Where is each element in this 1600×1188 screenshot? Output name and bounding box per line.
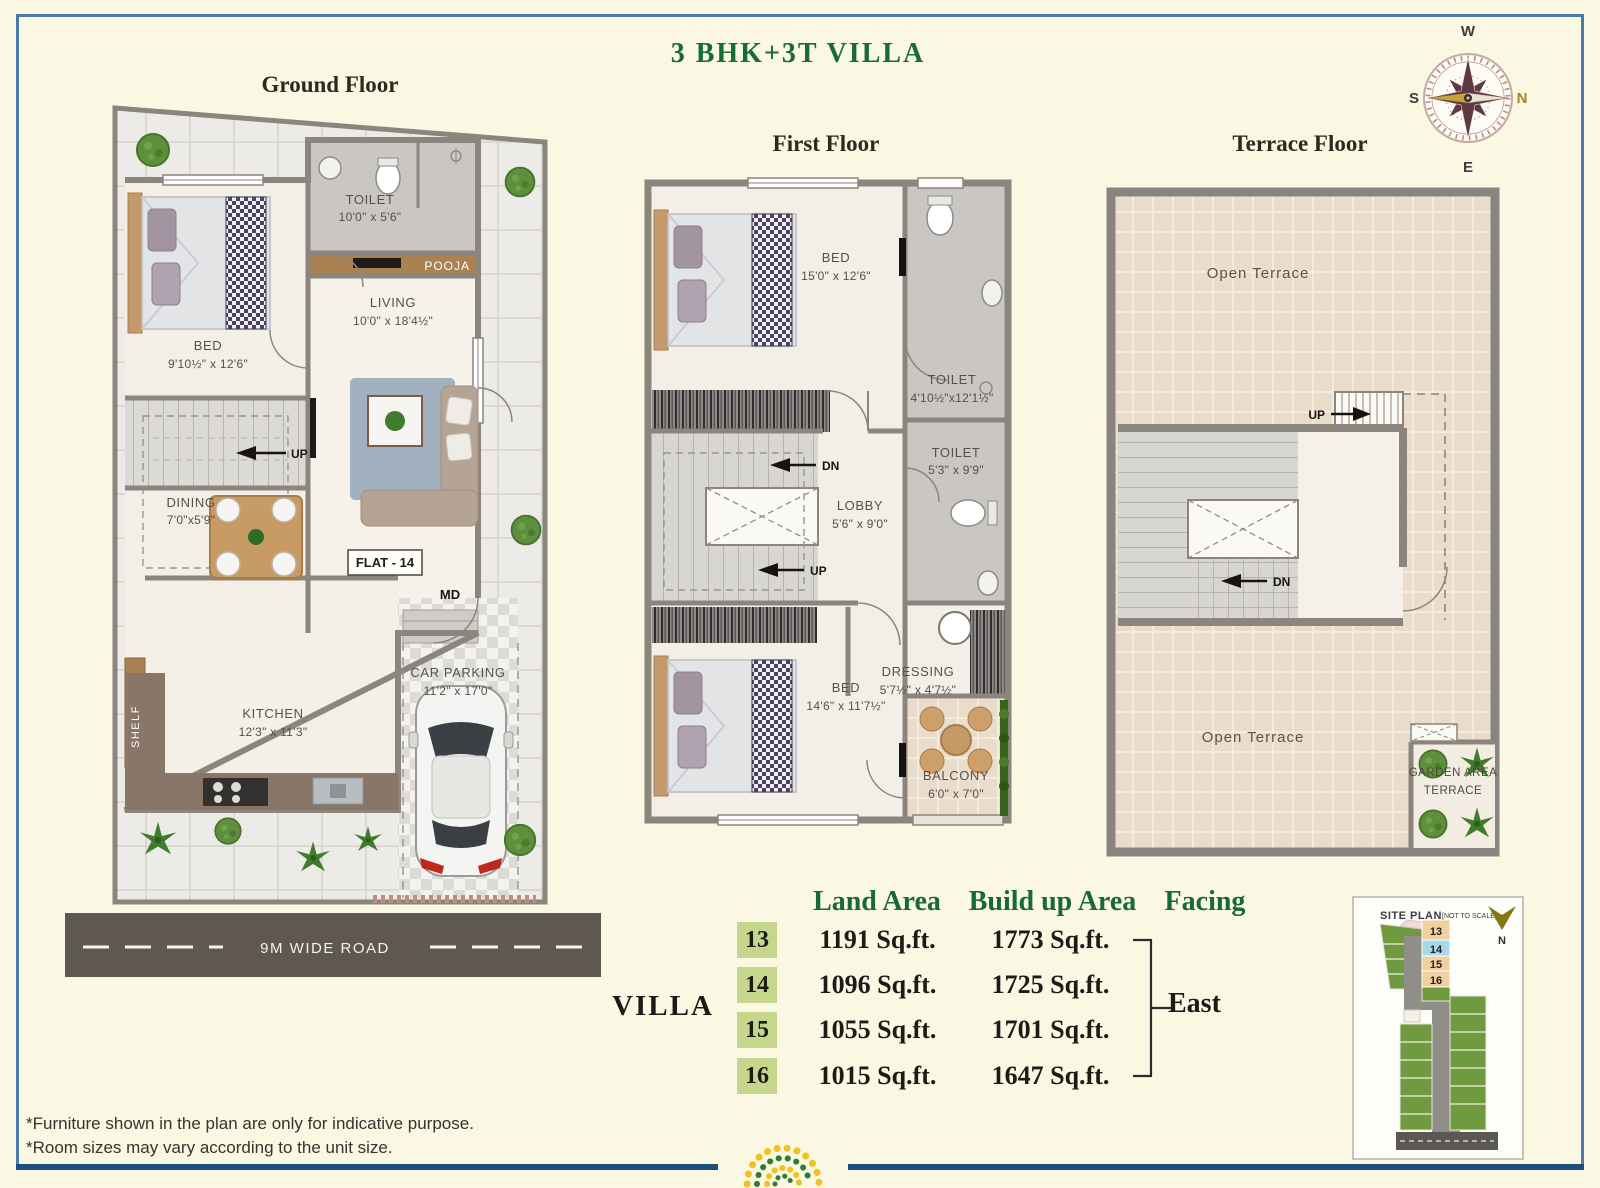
compass-north-label: N [1517,90,1528,107]
ff-bed2-label: BED [832,680,861,695]
tf-dn-label: DN [1273,575,1290,589]
site-plot-14: 14 [1430,944,1443,956]
ff-up-label: UP [810,564,827,578]
ff-bed2-dims: 14'6" x 11'7½" [806,699,885,713]
ff-lobby-dims: 5'6" x 9'0" [832,517,888,531]
gf-bed-dims: 9'10½" x 12'6" [168,357,248,371]
gf-bed-label: BED [194,338,223,353]
ff-toilet1-label: TOILET [928,372,977,387]
villa-number-16: 16 [737,1058,777,1094]
table-col-facing: Facing [1140,886,1270,918]
gf-living-label: LIVING [370,295,416,310]
ff-balcony-label: BALCONY [923,768,989,783]
gf-toilet-dims: 10'0" x 5'6" [339,210,402,224]
gf-kitchen-label: KITCHEN [242,706,303,721]
ff-bed1-label: BED [822,250,851,265]
land-area-14: 1096 Sq.ft. [795,970,960,1000]
land-area-15: 1055 Sq.ft. [795,1015,960,1045]
terrace-floor-heading: Terrace Floor [1150,131,1450,157]
ff-dressing-label: DRESSING [882,664,955,679]
gf-dining-furniture [210,496,302,578]
land-area-13: 1191 Sq.ft. [795,925,960,955]
note-room-sizes: *Room sizes may vary according to the un… [26,1136,474,1160]
bottom-rule-left [16,1164,718,1170]
gf-parking-label: CAR PARKING [410,665,505,680]
note-furniture: *Furniture shown in the plan are only fo… [26,1112,474,1136]
bottom-rule-right [848,1164,1584,1170]
table-col-build-area: Build up Area [955,886,1150,918]
site-plan-plots: 13 14 15 16 [1422,920,1450,987]
ff-toilet1-dims: 4'10½"x12'1½" [910,391,993,405]
gf-toilet-label: TOILET [346,192,395,207]
gf-pooja-label: POOJA [424,259,470,273]
site-plan: SITE PLAN [NOT TO SCALE] N [1352,896,1524,1160]
villa-number-15: 15 [737,1012,777,1048]
gf-md-label: MD [440,587,460,602]
gf-shelf-label: SHELF [130,705,142,748]
tf-up-label: UP [1308,408,1325,422]
site-plan-scale-note: [NOT TO SCALE] [1442,913,1497,920]
gf-dining-dims: 7'0"x5'9" [167,513,216,527]
gf-parking-dims: 11'2" x 17'0" [424,684,493,698]
build-area-16: 1647 Sq.ft. [963,1061,1138,1091]
gf-flat-label: FLAT - 14 [356,555,415,570]
villa-number-14: 14 [737,967,777,1003]
gf-road: 9M WIDE ROAD [65,913,601,977]
build-area-14: 1725 Sq.ft. [963,970,1138,1000]
land-area-16: 1015 Sq.ft. [795,1061,960,1091]
tf-garden-label-1: GARDEN AREA [1409,767,1498,779]
ff-dressing-dims: 5'7½" x 4'7½" [880,683,956,697]
ff-balcony-dims: 6'0" x 7'0" [928,787,984,801]
site-plan-north-label: N [1498,935,1506,947]
compass-west-label: W [1461,23,1476,40]
tf-garden-label-2: TERRACE [1424,785,1482,797]
gf-flat-badge: FLAT - 14 [348,550,422,575]
ff-dn-label: DN [822,459,839,473]
ff-lobby-label: LOBBY [837,498,883,513]
first-floor-plan: DN UP BED 15'0" x 12'6" TOILET 4'10½"x12… [618,158,1038,853]
gf-dining-label: DINING [166,495,215,510]
footer-notes: *Furniture shown in the plan are only fo… [26,1112,474,1160]
ff-toilet2-label: TOILET [932,445,981,460]
facing-value: East [1168,988,1221,1020]
villa-number-13: 13 [737,922,777,958]
table-row-header: VILLA [608,990,718,1023]
gf-living-dims: 10'0" x 18'4½" [353,314,433,328]
site-plot-15: 15 [1430,959,1442,971]
first-floor-heading: First Floor [676,131,976,157]
page-title: 3 BHK+3T VILLA [598,38,998,70]
gf-up-label: UP [291,447,308,461]
ground-floor-heading: Ground Floor [180,72,480,98]
flyer-page: 3 BHK+3T VILLA Ground Floor First Floor … [0,0,1600,1188]
site-plot-16: 16 [1430,975,1442,987]
tf-open-terrace-top-label: Open Terrace [1207,265,1310,282]
site-plot-13: 13 [1430,926,1442,938]
gf-bed-furniture [128,193,270,333]
build-area-13: 1773 Sq.ft. [963,925,1138,955]
gf-kitchen-dims: 12'3" x 11'3" [239,725,308,739]
builder-logo [723,1126,843,1188]
ground-floor-plan: UP FLAT - 14 BED 9'10½" x 12'6" TOILET 1… [58,98,613,988]
terrace-floor-plan: UP DN Open Terrace Open Terrace GARDEN A… [1093,172,1518,867]
build-area-15: 1701 Sq.ft. [963,1015,1138,1045]
compass-south-label: S [1409,90,1419,107]
gf-road-label: 9M WIDE ROAD [260,940,390,957]
ff-bed1-dims: 15'0" x 12'6" [801,269,871,283]
ff-toilet2-dims: 5'3" x 9'9" [928,463,984,477]
compass-rose-icon: W N E S [1406,20,1531,175]
table-col-land-area: Land Area [797,886,957,918]
tf-open-terrace-bottom-label: Open Terrace [1202,729,1305,746]
